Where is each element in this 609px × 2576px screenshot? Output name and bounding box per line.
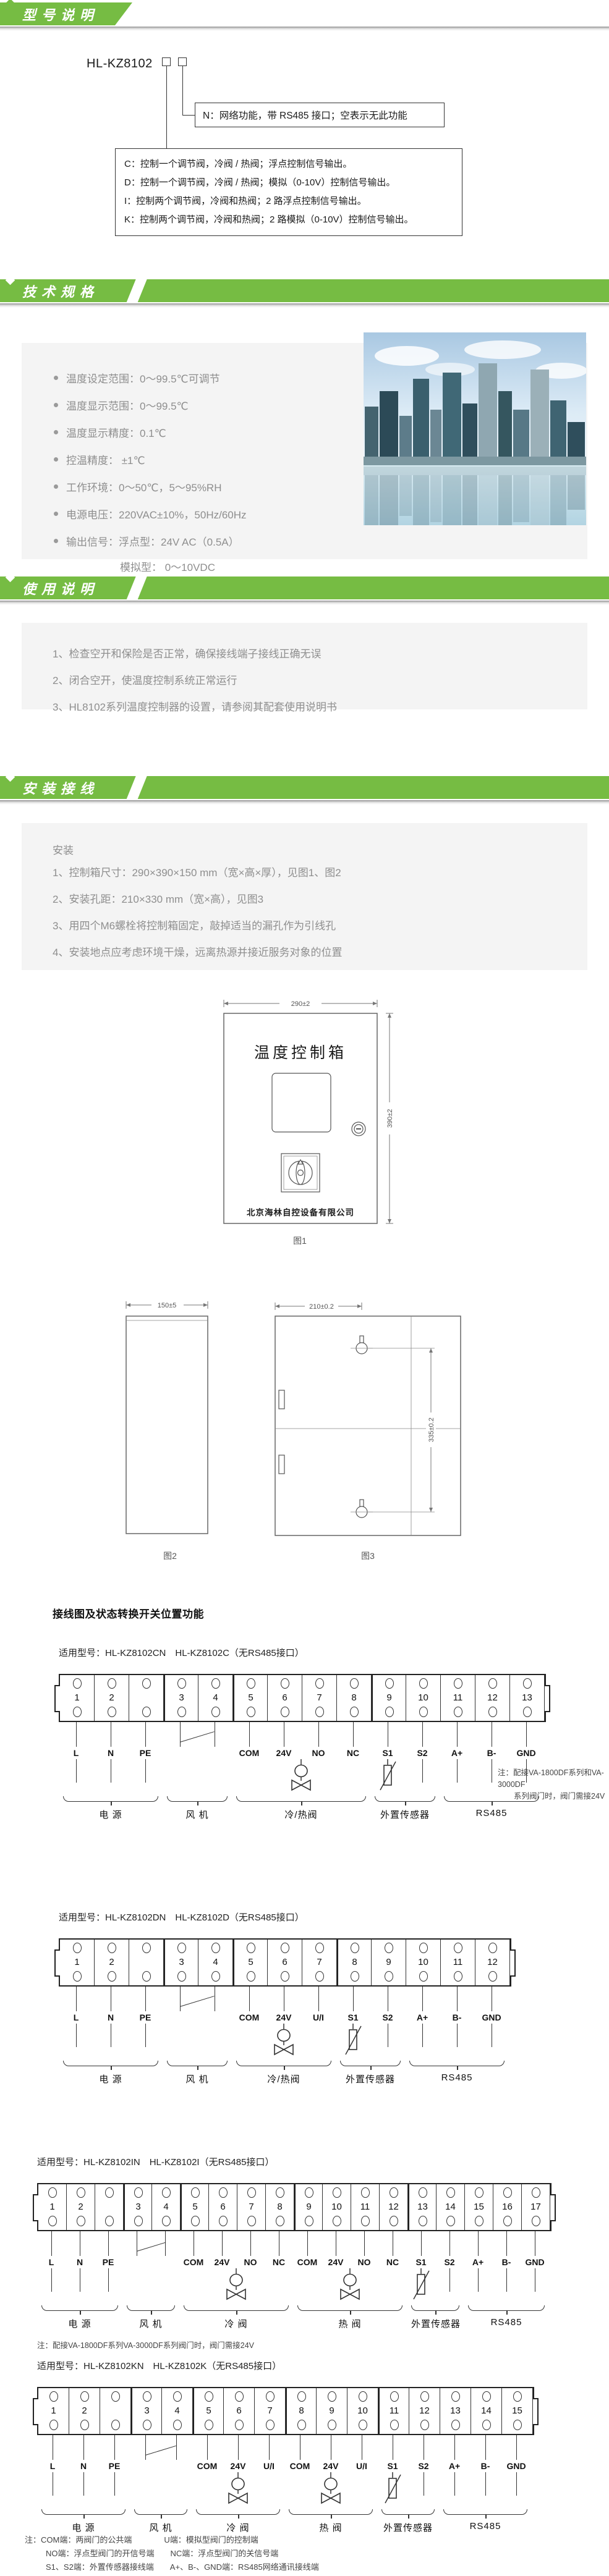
- screw-hole-icon: [247, 2216, 256, 2226]
- figure-2-control-box-side: 150±5: [117, 1298, 223, 1548]
- terminal-cell: 11: [441, 1675, 475, 1721]
- wire: [457, 1722, 458, 1747]
- wire: [215, 1722, 215, 1747]
- screw-hole-icon: [351, 1971, 359, 1982]
- terminal-number: 17: [530, 2202, 541, 2211]
- wire: [165, 2231, 166, 2256]
- terminal-group: 外置传感器: [381, 2509, 435, 2534]
- legend-line: NO端：浮点型阀门的开信号端 NC端：浮点型阀门的关信号端: [25, 2547, 319, 2561]
- terminal-cell: 16: [493, 2184, 522, 2230]
- terminal-cell: 12: [475, 1675, 510, 1721]
- group-brace: [134, 2509, 187, 2515]
- terminal-label: NC: [378, 2257, 407, 2267]
- section-title: 技术规格: [0, 279, 132, 302]
- terminal-number: 3: [179, 1693, 184, 1702]
- terminal-label: S1: [336, 2012, 370, 2022]
- terminal-group: 冷/热阀: [236, 1796, 366, 1821]
- connector-line: [182, 115, 195, 116]
- screw-hole-icon: [503, 2187, 512, 2198]
- terminal-cell: 3: [131, 2388, 162, 2434]
- terminal-strip: 1234567891011121314151617: [37, 2183, 552, 2231]
- wire: [249, 1987, 250, 2011]
- screw-hole-icon: [454, 1943, 462, 1953]
- temperature-sensor-symbol: [341, 2024, 365, 2061]
- diagram-model-line: 适用型号：HL-KZ8102CN HL-KZ8102C（无RS485接口）: [59, 1646, 546, 1659]
- screw-hole-icon: [281, 1971, 289, 1982]
- screw-hole-icon: [315, 1971, 324, 1982]
- wire: [76, 2024, 77, 2047]
- figure-1-caption: 图1: [275, 1235, 325, 1247]
- terminal-label: NC: [336, 1748, 370, 1758]
- screw-hole-icon: [105, 2216, 114, 2226]
- terminal-group-label: 冷/热阀: [236, 1808, 366, 1821]
- terminal-number: 10: [357, 2406, 368, 2415]
- strip-ear: [533, 2398, 539, 2425]
- terminal-cell: 8: [266, 2184, 294, 2230]
- wire: [284, 1722, 284, 1747]
- screw-hole-icon: [419, 1971, 428, 1982]
- wire: [180, 1722, 181, 1747]
- terminal-number: 14: [481, 2406, 492, 2415]
- wire: [145, 1759, 146, 1783]
- temperature-sensor-symbol: [380, 2472, 405, 2510]
- screw-hole-icon: [297, 2420, 306, 2430]
- wire: [485, 2435, 486, 2460]
- strip-ear: [550, 2194, 556, 2221]
- screw-hole-icon: [475, 2216, 483, 2226]
- terminal-group: 热 阀: [297, 2305, 402, 2330]
- model-option: D：控制一个调节阀，冷阀 / 热阀；模拟（0-10V）控制信号输出。: [124, 174, 453, 192]
- screw-hole-icon: [454, 1678, 462, 1689]
- terminal-cell: 6: [268, 1940, 302, 1985]
- terminal-group: 风 机: [167, 1796, 228, 1821]
- terminal-cell: 2: [69, 2388, 100, 2434]
- screw-hole-icon: [385, 1678, 394, 1689]
- wiring-diagram-2: 适用型号：HL-KZ8102DN HL-KZ8102D（无RS485接口）123…: [59, 1911, 511, 2088]
- terminal-group-label: 风 机: [134, 2521, 187, 2534]
- group-brace: [41, 2305, 118, 2311]
- terminal-number: 5: [248, 1957, 253, 1967]
- section-header-usage: 使用说明: [0, 576, 609, 606]
- terminal-number: 2: [82, 2406, 87, 2415]
- usage-item: 3、HL8102系列温度控制器的设置，请参阅其配套使用说明书: [53, 698, 587, 714]
- terminal-group: RS485: [409, 2061, 505, 2083]
- terminal-label: COM: [284, 2461, 315, 2471]
- terminal-cell: 12: [409, 2388, 440, 2434]
- screw-hole-icon: [315, 1943, 324, 1953]
- terminal-number: 12: [419, 2406, 430, 2415]
- wire: [516, 2472, 517, 2496]
- group-brace: [167, 2061, 228, 2066]
- screw-hole-icon: [134, 2187, 143, 2198]
- terminal-cell: [129, 1940, 164, 1985]
- screw-hole-icon: [419, 2187, 427, 2198]
- screw-hole-icon: [142, 1707, 151, 1717]
- wire: [114, 2472, 115, 2496]
- screw-hole-icon: [351, 1943, 359, 1953]
- screw-hole-icon: [266, 2420, 275, 2430]
- terminal-number: 11: [453, 1957, 463, 1967]
- screw-hole-icon: [48, 2216, 57, 2226]
- model-option: K：控制两个调节阀，冷阀和热阀；2 路模拟（0-10V）控制信号输出。: [124, 211, 453, 229]
- terminal-group: 外置传感器: [340, 2061, 401, 2085]
- terminal-number: 4: [213, 1693, 218, 1702]
- terminal-label: N: [93, 1748, 128, 1758]
- wire: [526, 1759, 527, 1783]
- terminal-number: 10: [331, 2202, 342, 2211]
- terminal-cell: 10: [406, 1940, 441, 1985]
- terminal-strip: 123456789101112131415: [37, 2387, 534, 2435]
- terminal-number: 8: [299, 2406, 304, 2415]
- terminal-cell: 11: [351, 2184, 380, 2230]
- screw-hole-icon: [488, 1971, 497, 1982]
- terminal-cell: 5: [233, 1675, 268, 1721]
- section-title-text: 技术规格: [22, 281, 99, 301]
- fig3-dim-height: 335±0.2: [428, 1417, 435, 1442]
- wire: [388, 1722, 388, 1747]
- screw-hole-icon: [451, 2391, 460, 2402]
- diagram-model-line: 适用型号：HL-KZ8102KN HL-KZ8102K（无RS485接口）: [37, 2359, 534, 2372]
- wire: [388, 2024, 388, 2047]
- screw-hole-icon: [281, 1678, 289, 1689]
- wire: [331, 2435, 331, 2460]
- strip-ear: [510, 1949, 516, 1977]
- wire: [526, 1722, 527, 1747]
- terminal-cell: 2: [95, 1940, 129, 1985]
- terminal-cell: [100, 2388, 131, 2434]
- wire: [457, 1759, 458, 1783]
- wire: [114, 2435, 115, 2460]
- terminal-label: GND: [474, 2012, 509, 2022]
- terminal-cell: 9: [317, 2388, 347, 2434]
- terminal-label: U/I: [346, 2461, 377, 2471]
- install-subtitle: 安装: [53, 842, 74, 857]
- terminal-number: 3: [179, 1957, 184, 1967]
- terminal-label: 24V: [208, 2257, 236, 2267]
- screw-hole-icon: [219, 2187, 228, 2198]
- section-header-model: 型号说明: [0, 2, 609, 32]
- terminal-label: S2: [408, 2461, 439, 2471]
- section-header-specs: 技术规格: [0, 279, 609, 309]
- wire: [421, 2231, 422, 2256]
- terminal-number: 11: [360, 2202, 370, 2211]
- strip-ear: [54, 1949, 60, 1977]
- terminal-group: 电 源: [63, 2061, 158, 2085]
- terminal-group-label: 风 机: [167, 1808, 228, 1821]
- wire: [284, 1987, 284, 2011]
- screw-hole-icon: [488, 1943, 497, 1953]
- screw-hole-icon: [390, 2187, 398, 2198]
- screw-hole-icon: [446, 2187, 455, 2198]
- wire: [53, 2435, 53, 2460]
- terminal-cell: 7: [302, 1675, 337, 1721]
- terminal-number: 15: [474, 2202, 484, 2211]
- terminal-cell: 7: [237, 2184, 266, 2230]
- terminal-label: L: [37, 2257, 66, 2267]
- wire: [362, 2435, 362, 2460]
- model-option: I：控制两个调节阀，冷阀和热阀；2 路浮点控制信号输出。: [124, 192, 453, 211]
- terminal-group: RS485: [443, 2509, 527, 2532]
- screw-hole-icon: [333, 2216, 341, 2226]
- wire: [80, 2268, 80, 2292]
- group-brace: [184, 2305, 289, 2311]
- terminal-number: 4: [174, 2406, 179, 2415]
- terminal-label: GND: [501, 2461, 532, 2471]
- fig1-company: 北京海林自控设备有限公司: [247, 1207, 354, 1217]
- wire: [111, 1987, 111, 2011]
- wire: [492, 1987, 492, 2011]
- group-brace: [167, 1796, 228, 1802]
- usage-item: 2、闭合空开，使温度控制系统正常运行: [53, 672, 587, 687]
- screw-hole-icon: [454, 1707, 462, 1717]
- spec-item-continuation: 模拟型： 0～10VDC: [120, 559, 587, 574]
- wiring-diagram-3: 适用型号：HL-KZ8102IN HL-KZ8102I（无RS485接口）123…: [37, 2155, 552, 2350]
- screw-hole-icon: [419, 1707, 428, 1717]
- valve-symbol: [331, 2268, 368, 2306]
- screw-hole-icon: [235, 2420, 244, 2430]
- section-title: 使用说明: [0, 576, 132, 599]
- wire: [364, 2231, 365, 2256]
- terminal-cell: 8: [337, 1675, 372, 1721]
- terminal-label: A+: [405, 2012, 440, 2022]
- terminal-label: B-: [492, 2257, 521, 2267]
- terminal-cell: 3: [164, 1675, 198, 1721]
- screw-hole-icon: [108, 1707, 116, 1717]
- terminal-cell: 10: [347, 2388, 378, 2434]
- figure-2-caption: 图2: [145, 1550, 195, 1562]
- screw-hole-icon: [482, 2420, 491, 2430]
- terminal-number: 2: [78, 2202, 83, 2211]
- wire: [353, 1722, 354, 1747]
- terminal-cell: 13: [510, 1675, 545, 1721]
- terminal-cell: 6: [224, 2388, 255, 2434]
- screw-hole-icon: [503, 2216, 512, 2226]
- terminal-label: A+: [440, 1748, 474, 1758]
- terminal-cell: [95, 2184, 124, 2230]
- terminal-number: 7: [317, 1957, 322, 1967]
- diagram-model-line: 适用型号：HL-KZ8102DN HL-KZ8102D（无RS485接口）: [59, 1911, 511, 1924]
- terminal-cell: 14: [437, 2184, 465, 2230]
- section-title: 型号说明: [0, 2, 132, 25]
- screw-hole-icon: [111, 2391, 120, 2402]
- fan-switch-symbol: [180, 1996, 215, 2007]
- screw-hole-icon: [80, 2391, 89, 2402]
- wire: [492, 1759, 492, 1783]
- terminal-number: 2: [109, 1693, 114, 1702]
- wire: [336, 2231, 336, 2256]
- screw-hole-icon: [191, 2216, 200, 2226]
- wire: [422, 2024, 423, 2047]
- wire: [180, 1987, 181, 2011]
- terminal-cell: 2: [95, 1675, 129, 1721]
- wire: [249, 1722, 250, 1747]
- valve-symbol: [265, 2024, 302, 2061]
- screw-hole-icon: [73, 1943, 82, 1953]
- screw-hole-icon: [80, 2420, 89, 2430]
- wire: [535, 2268, 535, 2292]
- terminal-label: N: [93, 2012, 128, 2022]
- terminal-number: 2: [109, 1957, 114, 1967]
- terminal-number: 1: [49, 2202, 54, 2211]
- terminal-number: 6: [236, 2406, 241, 2415]
- wire: [83, 2435, 84, 2460]
- screw-hole-icon: [419, 1943, 428, 1953]
- wire: [454, 2435, 455, 2460]
- terminal-label: GND: [521, 2257, 549, 2267]
- screw-hole-icon: [235, 2391, 244, 2402]
- terminal-number: 10: [418, 1693, 428, 1702]
- section-title-text: 安装接线: [22, 778, 99, 798]
- city-skyline-photo: [364, 332, 586, 525]
- wire: [111, 1722, 111, 1747]
- terminal-number: 11: [390, 2406, 399, 2415]
- terminal-legend: 注：COM端：两阀门的公共端 U端：模拟型阀门的控制端NO端：浮点型阀门的开信号…: [25, 2533, 319, 2574]
- wire: [108, 2268, 109, 2292]
- screw-hole-icon: [328, 2391, 336, 2402]
- group-brace: [340, 2061, 401, 2066]
- screw-hole-icon: [205, 2391, 213, 2402]
- terminal-cell: 6: [209, 2184, 237, 2230]
- screw-hole-icon: [177, 1943, 186, 1953]
- terminal-cell: 5: [193, 2388, 224, 2434]
- group-brace: [196, 2509, 280, 2515]
- terminal-cell: 3: [164, 1940, 198, 1985]
- terminal-number: 8: [277, 2202, 282, 2211]
- terminal-number: 16: [502, 2202, 513, 2211]
- terminal-cell: 15: [502, 2388, 533, 2434]
- screw-hole-icon: [173, 2420, 182, 2430]
- terminal-group: 电 源: [41, 2305, 118, 2330]
- valve-symbol: [218, 2268, 255, 2306]
- wire: [111, 1759, 111, 1783]
- screw-hole-icon: [305, 2216, 313, 2226]
- terminal-number: 5: [192, 2202, 197, 2211]
- terminal-label: S1: [370, 1748, 405, 1758]
- screw-hole-icon: [281, 1943, 289, 1953]
- wire: [424, 2435, 424, 2460]
- terminal-number: 12: [487, 1693, 498, 1702]
- terminal-number: 8: [351, 1693, 356, 1702]
- terminal-label: 24V: [322, 2257, 350, 2267]
- screw-hole-icon: [446, 2216, 455, 2226]
- wire: [83, 2472, 84, 2496]
- wire: [53, 2472, 53, 2496]
- terminal-label: L: [59, 2012, 93, 2022]
- terminal-group-label: RS485: [468, 2317, 545, 2328]
- terminal-number: 1: [51, 2406, 56, 2415]
- terminal-label: PE: [99, 2461, 130, 2471]
- terminal-cell: 4: [198, 1675, 233, 1721]
- terminal-label: S2: [405, 1748, 440, 1758]
- terminal-number: 1: [74, 1693, 79, 1702]
- wiring-diagram-4: 适用型号：HL-KZ8102KN HL-KZ8102K（无RS485接口）123…: [37, 2359, 534, 2536]
- terminal-label: PE: [128, 2012, 163, 2022]
- screw-hole-icon: [73, 1707, 82, 1717]
- wire: [176, 2435, 177, 2460]
- screw-hole-icon: [143, 2391, 151, 2402]
- terminal-cell: 13: [440, 2388, 471, 2434]
- wiring-diagram-1: 注：配接VA-1800DF系列和VA-3000DF 系列阀门时，阀门需接24V …: [59, 1646, 546, 1823]
- screw-hole-icon: [111, 2420, 120, 2430]
- connector-line: [182, 66, 183, 115]
- screw-hole-icon: [315, 1678, 324, 1689]
- terminal-group: 风 机: [127, 2305, 175, 2330]
- wire: [238, 2435, 239, 2460]
- terminal-number: 13: [417, 2202, 428, 2211]
- terminal-group: 电 源: [41, 2509, 126, 2534]
- group-brace: [63, 1796, 158, 1802]
- wire: [478, 2231, 479, 2256]
- terminal-label: B-: [474, 1748, 509, 1758]
- wire: [535, 2231, 535, 2256]
- model-note-n: N：网络功能，带 RS485 接口；空表示无此功能: [195, 103, 445, 127]
- terminal-group: 外置传感器: [375, 1796, 435, 1821]
- terminal-number: 6: [282, 1957, 287, 1967]
- terminal-group: 电 源: [63, 1796, 158, 1821]
- group-brace: [236, 1796, 366, 1802]
- terminal-cell: 8: [286, 2388, 317, 2434]
- group-brace: [127, 2305, 175, 2311]
- screw-hole-icon: [420, 2391, 429, 2402]
- model-option-box-1: [162, 57, 171, 66]
- temperature-sensor-symbol: [375, 1759, 400, 1797]
- terminal-number: 9: [329, 2406, 334, 2415]
- header-shadow: [0, 601, 609, 605]
- screw-hole-icon: [297, 2391, 306, 2402]
- legend-line: S1、S2端：外置传感器接线端 A+、B-、GND端：RS485网络通讯接线端: [25, 2561, 319, 2574]
- terminal-group-label: 电 源: [63, 1808, 158, 1821]
- wire: [424, 2472, 424, 2496]
- wire: [137, 2231, 137, 2256]
- valve-symbol: [283, 1759, 320, 1797]
- terminal-number: 13: [522, 1693, 532, 1702]
- terminal-number: 6: [220, 2202, 225, 2211]
- usage-item: 1、检查空开和保险是否正常，确保接线端子接线正确无误: [53, 645, 587, 661]
- terminal-label: PE: [94, 2257, 122, 2267]
- screw-hole-icon: [390, 2391, 399, 2402]
- terminal-cell: 4: [198, 1940, 233, 1985]
- screw-hole-icon: [488, 1707, 497, 1717]
- screw-hole-icon: [143, 2420, 151, 2430]
- terminal-label: S2: [370, 2012, 405, 2022]
- screw-hole-icon: [211, 1707, 220, 1717]
- screw-hole-icon: [73, 1678, 82, 1689]
- install-item: 1、控制箱尺寸：290×390×150 mm（宽×高×厚），见图1、图2: [53, 864, 587, 879]
- screw-hole-icon: [108, 1943, 116, 1953]
- usage-list: 1、检查空开和保险是否正常，确保接线端子接线正确无误2、闭合空开，使温度控制系统…: [22, 623, 587, 714]
- terminal-label: COM: [192, 2461, 223, 2471]
- terminal-label: 24V: [315, 2461, 346, 2471]
- group-brace: [375, 1796, 435, 1802]
- screw-hole-icon: [488, 1678, 497, 1689]
- terminal-number: 10: [418, 1957, 428, 1967]
- terminal-group-label: 外置传感器: [411, 2317, 459, 2330]
- wire: [269, 2435, 270, 2460]
- wire: [215, 1987, 215, 2011]
- terminal-group: 风 机: [167, 2061, 228, 2085]
- screw-hole-icon: [420, 2420, 429, 2430]
- screw-hole-icon: [211, 1971, 220, 1982]
- terminal-cell: 13: [408, 2184, 437, 2230]
- header-shadow: [0, 27, 609, 31]
- screw-hole-icon: [211, 1678, 220, 1689]
- strip-ear: [33, 2398, 38, 2425]
- terminal-label: B-: [440, 2012, 474, 2022]
- terminal-number: 3: [135, 2202, 140, 2211]
- wire: [449, 2231, 450, 2256]
- terminal-number: 5: [248, 1693, 253, 1702]
- section-header-install: 安装接线: [0, 776, 609, 806]
